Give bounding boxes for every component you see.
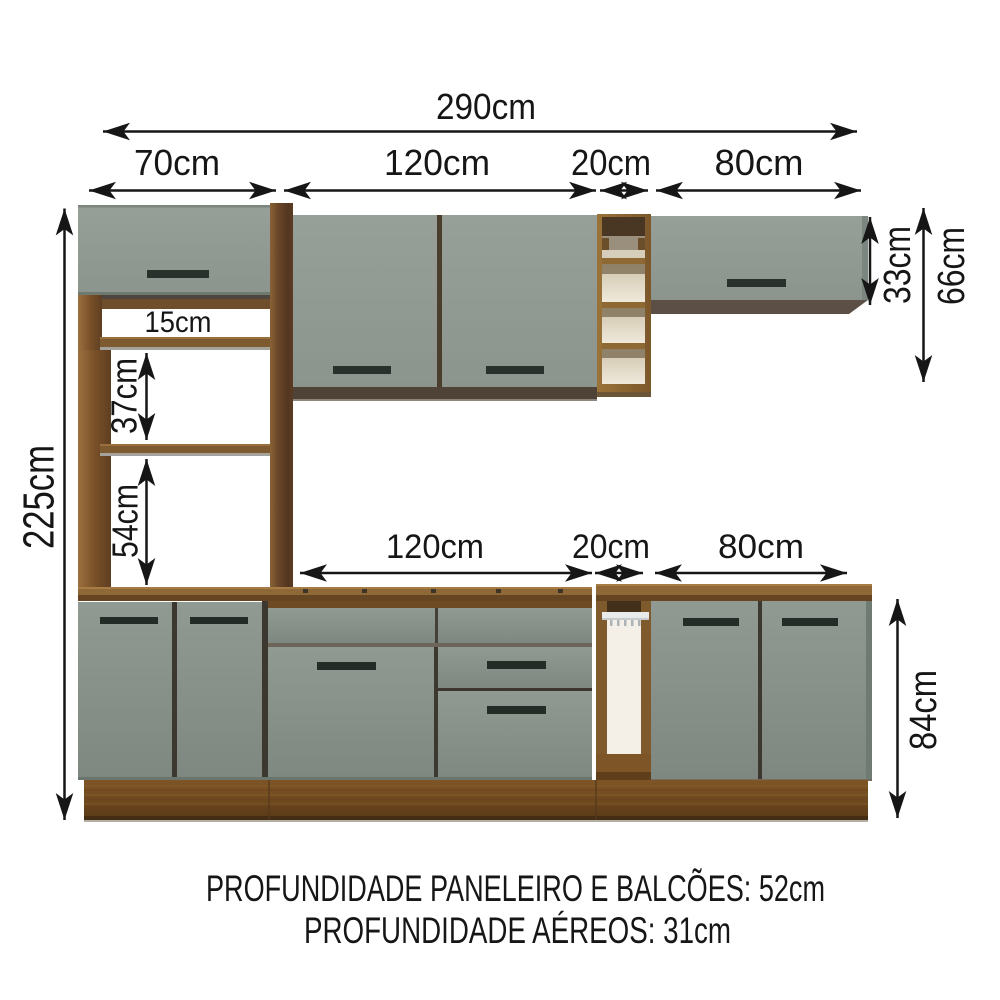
svg-text:70cm: 70cm xyxy=(134,142,220,183)
svg-text:37cm: 37cm xyxy=(104,358,145,434)
svg-text:290cm: 290cm xyxy=(436,86,536,127)
svg-text:225cm: 225cm xyxy=(15,445,64,549)
svg-text:54cm: 54cm xyxy=(105,484,146,558)
svg-text:84cm: 84cm xyxy=(903,670,945,750)
svg-text:PROFUNDIDADE PANELEIRO E BALCÕ: PROFUNDIDADE PANELEIRO E BALCÕES: 52cm xyxy=(206,868,825,909)
svg-text:33cm: 33cm xyxy=(877,226,919,304)
svg-text:15cm: 15cm xyxy=(145,306,212,339)
svg-text:20cm: 20cm xyxy=(571,142,651,183)
svg-text:20cm: 20cm xyxy=(572,528,650,566)
svg-text:PROFUNDIDADE AÉREOS: 31cm: PROFUNDIDADE AÉREOS: 31cm xyxy=(304,910,731,951)
svg-text:80cm: 80cm xyxy=(715,142,804,183)
svg-text:66cm: 66cm xyxy=(931,227,973,305)
svg-text:120cm: 120cm xyxy=(386,528,484,566)
svg-text:120cm: 120cm xyxy=(384,142,490,183)
svg-text:80cm: 80cm xyxy=(718,528,804,566)
